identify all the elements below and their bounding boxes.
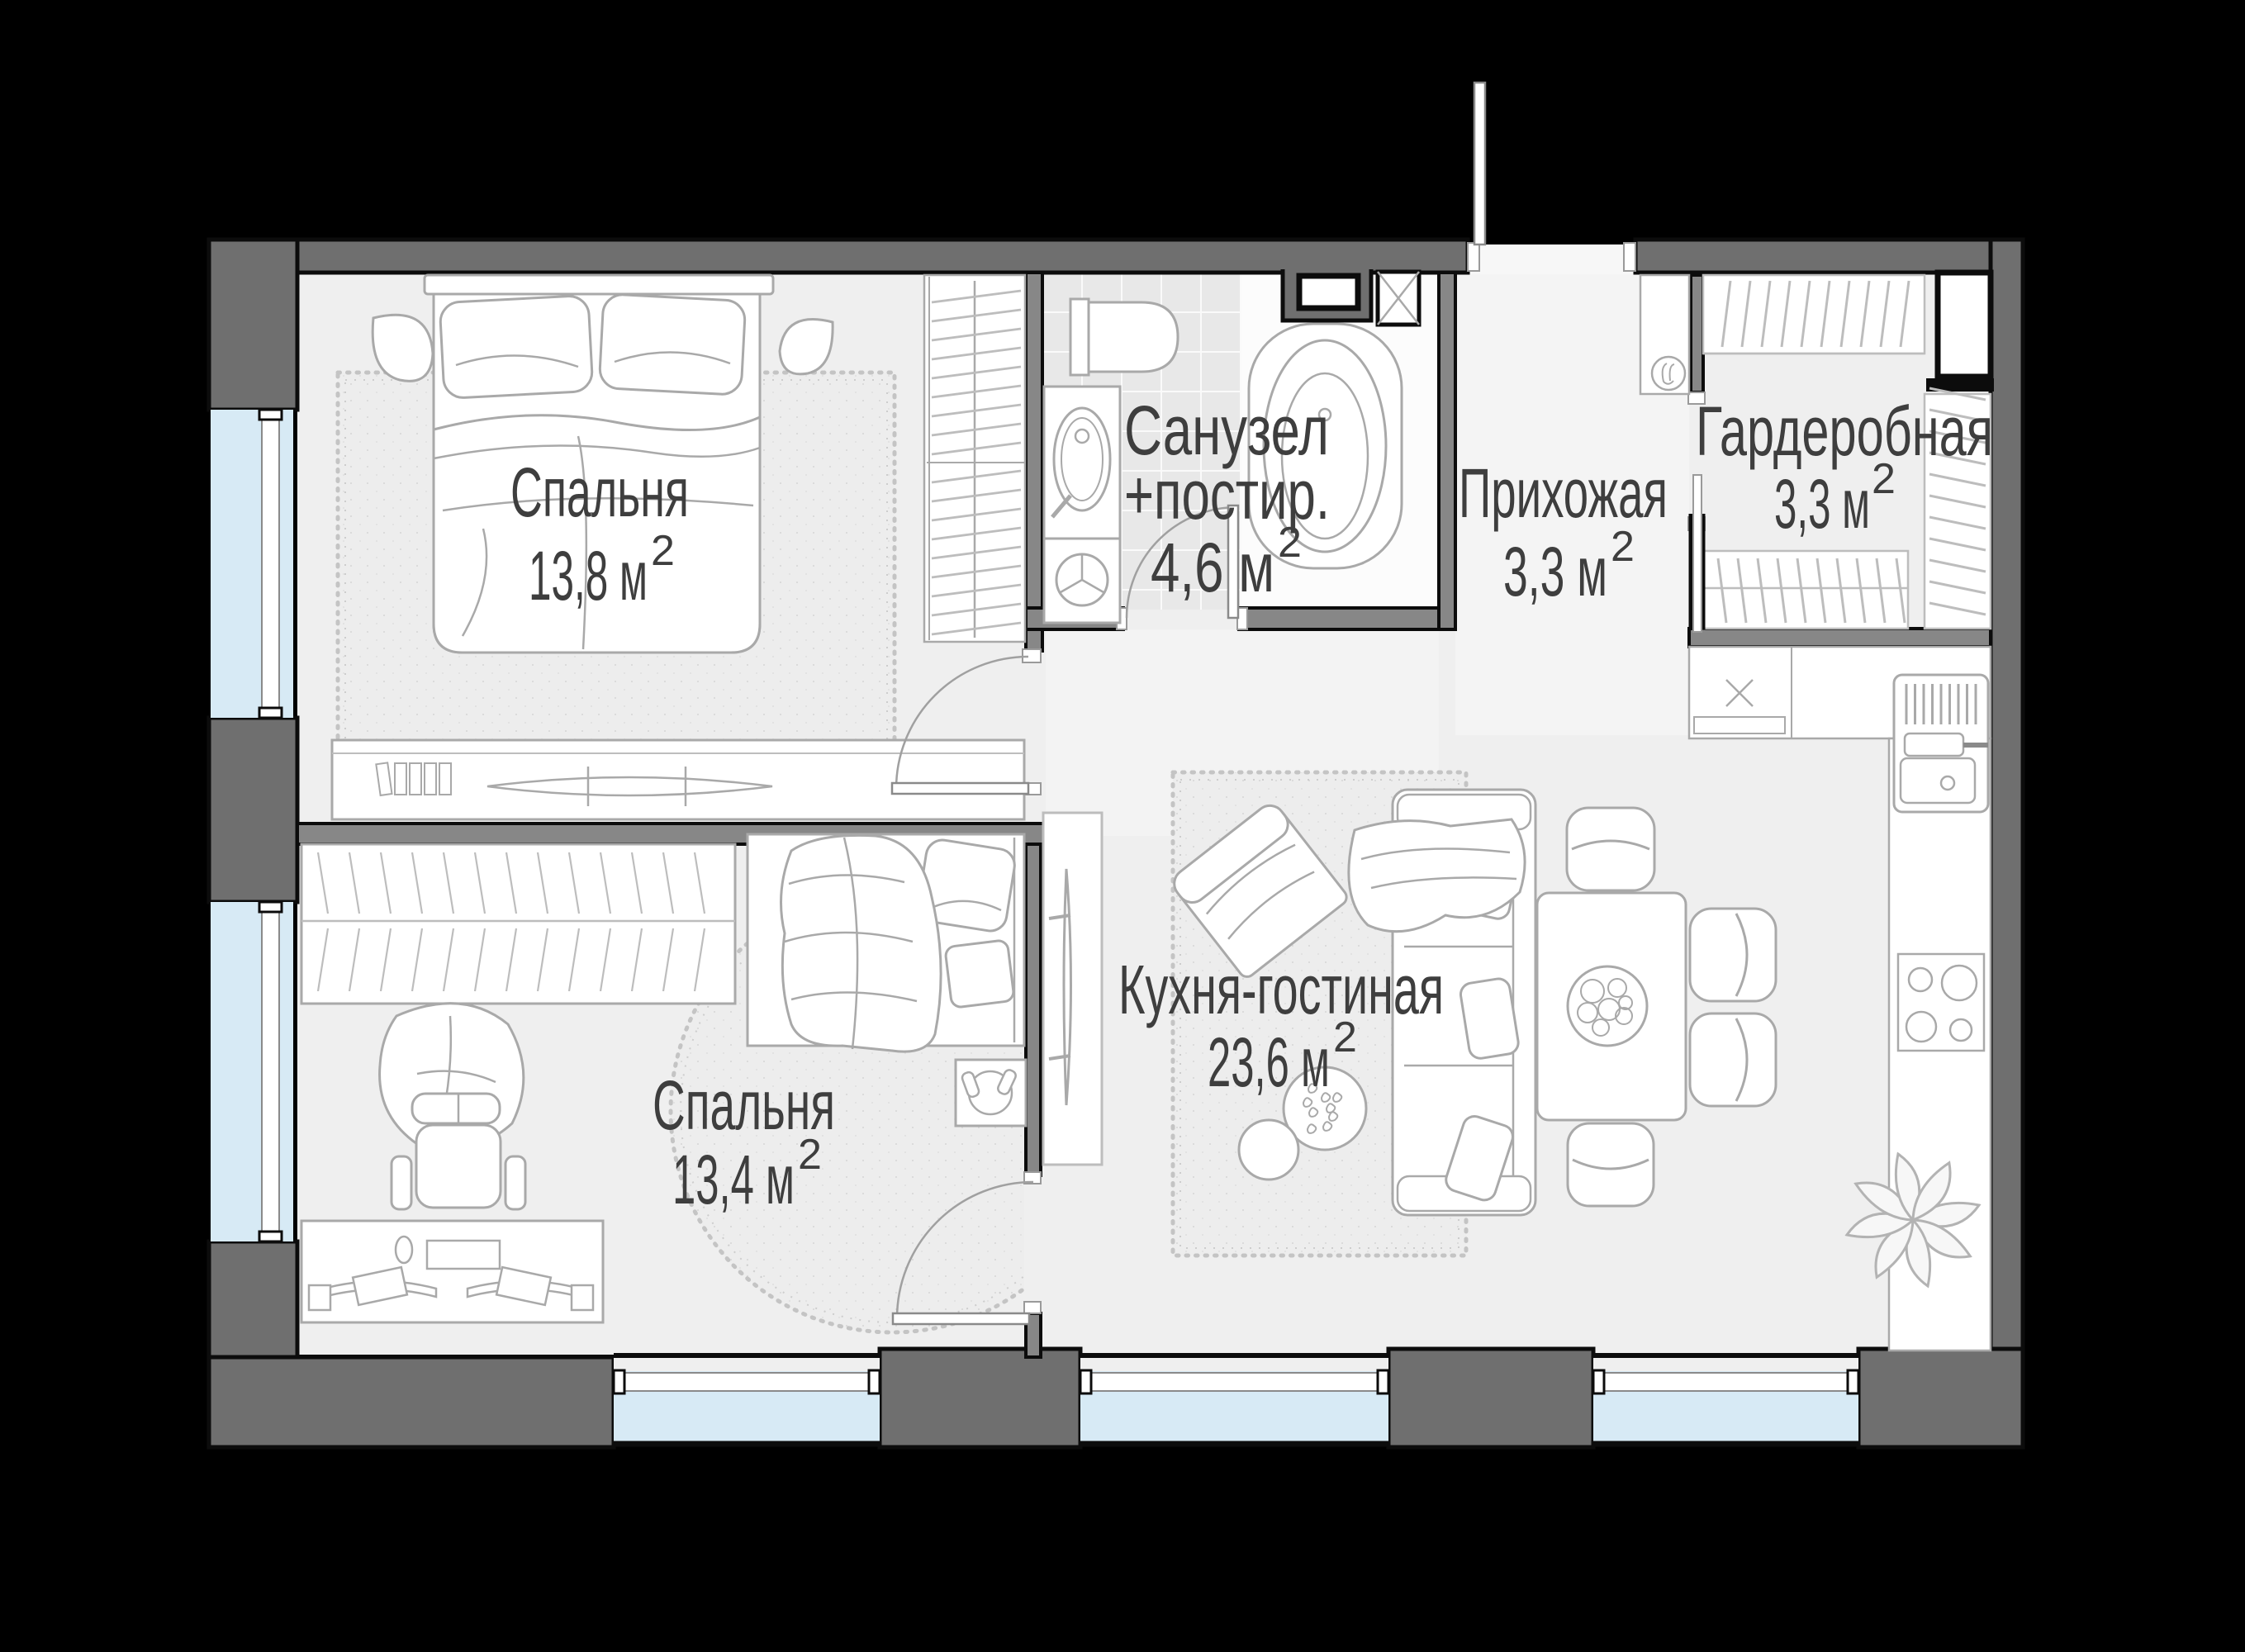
svg-text:13,4 м: 13,4 м <box>672 1141 795 1218</box>
svg-text:2: 2 <box>1872 455 1896 503</box>
svg-text:2: 2 <box>1611 523 1635 571</box>
svg-text:Спальня: Спальня <box>510 453 689 531</box>
svg-text:Прихожая: Прихожая <box>1459 454 1668 532</box>
svg-text:Гардеробная: Гардеробная <box>1696 392 1993 470</box>
svg-text:23,6 м: 23,6 м <box>1208 1023 1330 1101</box>
svg-text:3,3 м: 3,3 м <box>1503 533 1607 610</box>
svg-text:13,8 м: 13,8 м <box>529 537 648 615</box>
svg-text:4,6 м: 4,6 м <box>1151 529 1274 606</box>
svg-text:2: 2 <box>1333 1014 1357 1061</box>
svg-text:2: 2 <box>651 527 675 575</box>
svg-text:Кухня-гостиная: Кухня-гостиная <box>1118 951 1444 1028</box>
svg-text:3,3 м: 3,3 м <box>1774 465 1870 543</box>
svg-text:2: 2 <box>1278 519 1302 567</box>
svg-text:2: 2 <box>798 1131 822 1179</box>
